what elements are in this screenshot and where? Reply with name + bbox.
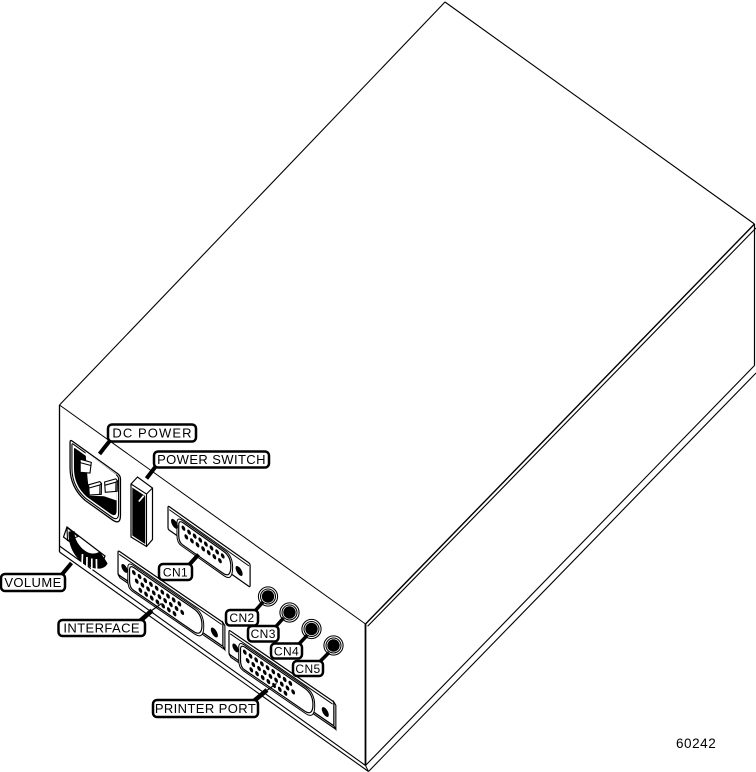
svg-text:CN3: CN3 bbox=[251, 627, 276, 641]
svg-text:CN2: CN2 bbox=[229, 611, 254, 625]
svg-text:INTERFACE: INTERFACE bbox=[63, 621, 140, 636]
svg-text:60242: 60242 bbox=[676, 736, 716, 751]
svg-text:PRINTER PORT: PRINTER PORT bbox=[155, 701, 256, 716]
svg-text:POWER SWITCH: POWER SWITCH bbox=[157, 452, 266, 467]
svg-text:DC POWER: DC POWER bbox=[112, 426, 192, 441]
svg-text:CN4: CN4 bbox=[274, 644, 299, 658]
svg-text:VOLUME: VOLUME bbox=[4, 575, 61, 590]
svg-text:CN1: CN1 bbox=[163, 566, 188, 580]
svg-text:CN5: CN5 bbox=[295, 662, 320, 676]
